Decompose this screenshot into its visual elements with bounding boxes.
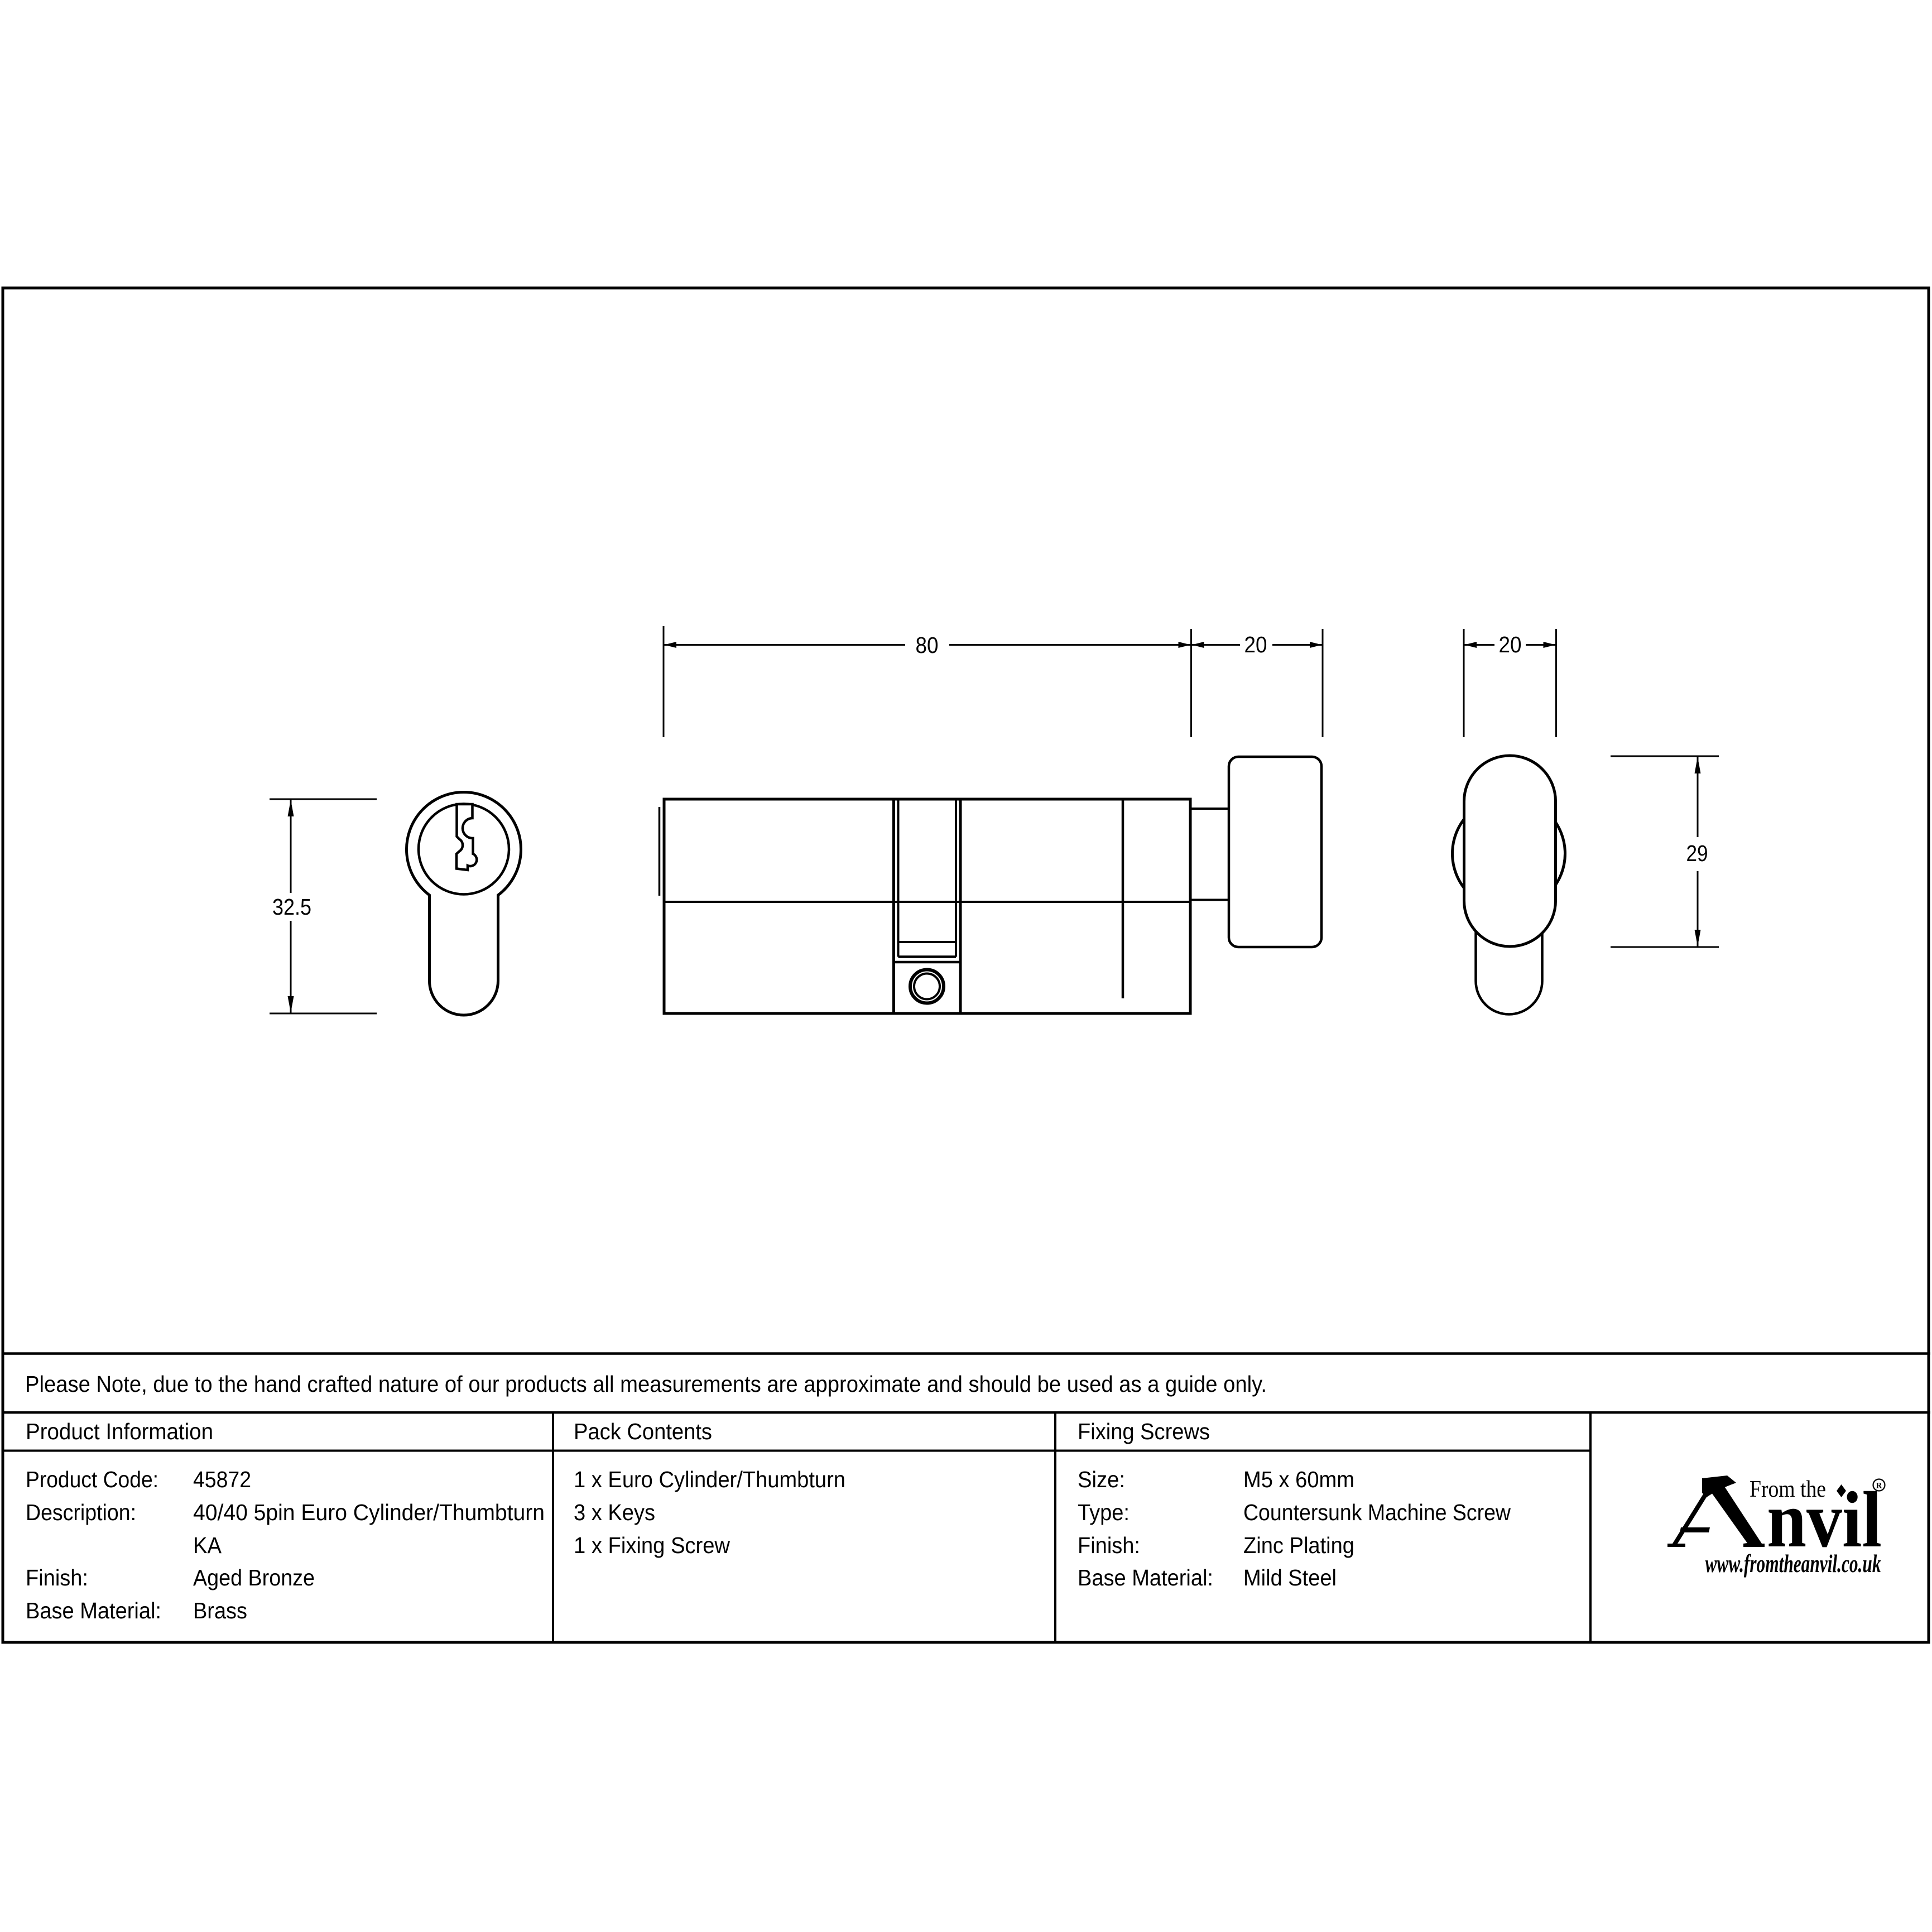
svg-text:Zinc Plating: Zinc Plating	[1243, 1532, 1354, 1558]
svg-text:Description:: Description:	[26, 1500, 136, 1525]
svg-text:Brass: Brass	[193, 1598, 247, 1623]
svg-text:40/40 5pin Euro Cylinder/Thumb: 40/40 5pin Euro Cylinder/Thumbturn	[193, 1500, 545, 1525]
svg-text:29: 29	[1686, 840, 1708, 866]
svg-text:R: R	[1876, 1482, 1882, 1491]
svg-text:Base Material:: Base Material:	[1078, 1565, 1213, 1590]
svg-text:3 x Keys: 3 x Keys	[574, 1500, 655, 1525]
svg-text:45872: 45872	[193, 1467, 251, 1492]
svg-text:1 x Fixing Screw: 1 x Fixing Screw	[574, 1532, 730, 1558]
svg-text:Size:: Size:	[1078, 1467, 1125, 1492]
svg-text:KA: KA	[193, 1532, 222, 1558]
svg-text:Countersunk Machine Screw: Countersunk Machine Screw	[1243, 1500, 1511, 1525]
svg-text:Product Code:: Product Code:	[26, 1467, 158, 1492]
svg-text:Pack Contents: Pack Contents	[574, 1419, 712, 1444]
svg-text:1 x Euro Cylinder/Thumbturn: 1 x Euro Cylinder/Thumbturn	[574, 1467, 845, 1492]
svg-text:Type:: Type:	[1078, 1500, 1130, 1525]
svg-text:32.5: 32.5	[272, 894, 311, 920]
svg-text:Base Material:: Base Material:	[26, 1598, 161, 1623]
svg-text:Aged Bronze: Aged Bronze	[193, 1565, 315, 1590]
svg-text:20: 20	[1499, 632, 1522, 657]
svg-text:Finish:: Finish:	[26, 1565, 88, 1590]
svg-text:Mild Steel: Mild Steel	[1243, 1565, 1337, 1590]
svg-text:Finish:: Finish:	[1078, 1532, 1140, 1558]
svg-text:20: 20	[1244, 632, 1267, 657]
svg-text:Fixing Screws: Fixing Screws	[1078, 1419, 1210, 1444]
svg-text:Product Information: Product Information	[26, 1419, 213, 1444]
svg-text:www.fromtheanvil.co.uk: www.fromtheanvil.co.uk	[1705, 1549, 1881, 1578]
svg-text:Please Note, due to the hand c: Please Note, due to the hand crafted nat…	[25, 1371, 1267, 1397]
svg-text:M5 x 60mm: M5 x 60mm	[1243, 1467, 1354, 1492]
svg-text:80: 80	[916, 632, 939, 658]
